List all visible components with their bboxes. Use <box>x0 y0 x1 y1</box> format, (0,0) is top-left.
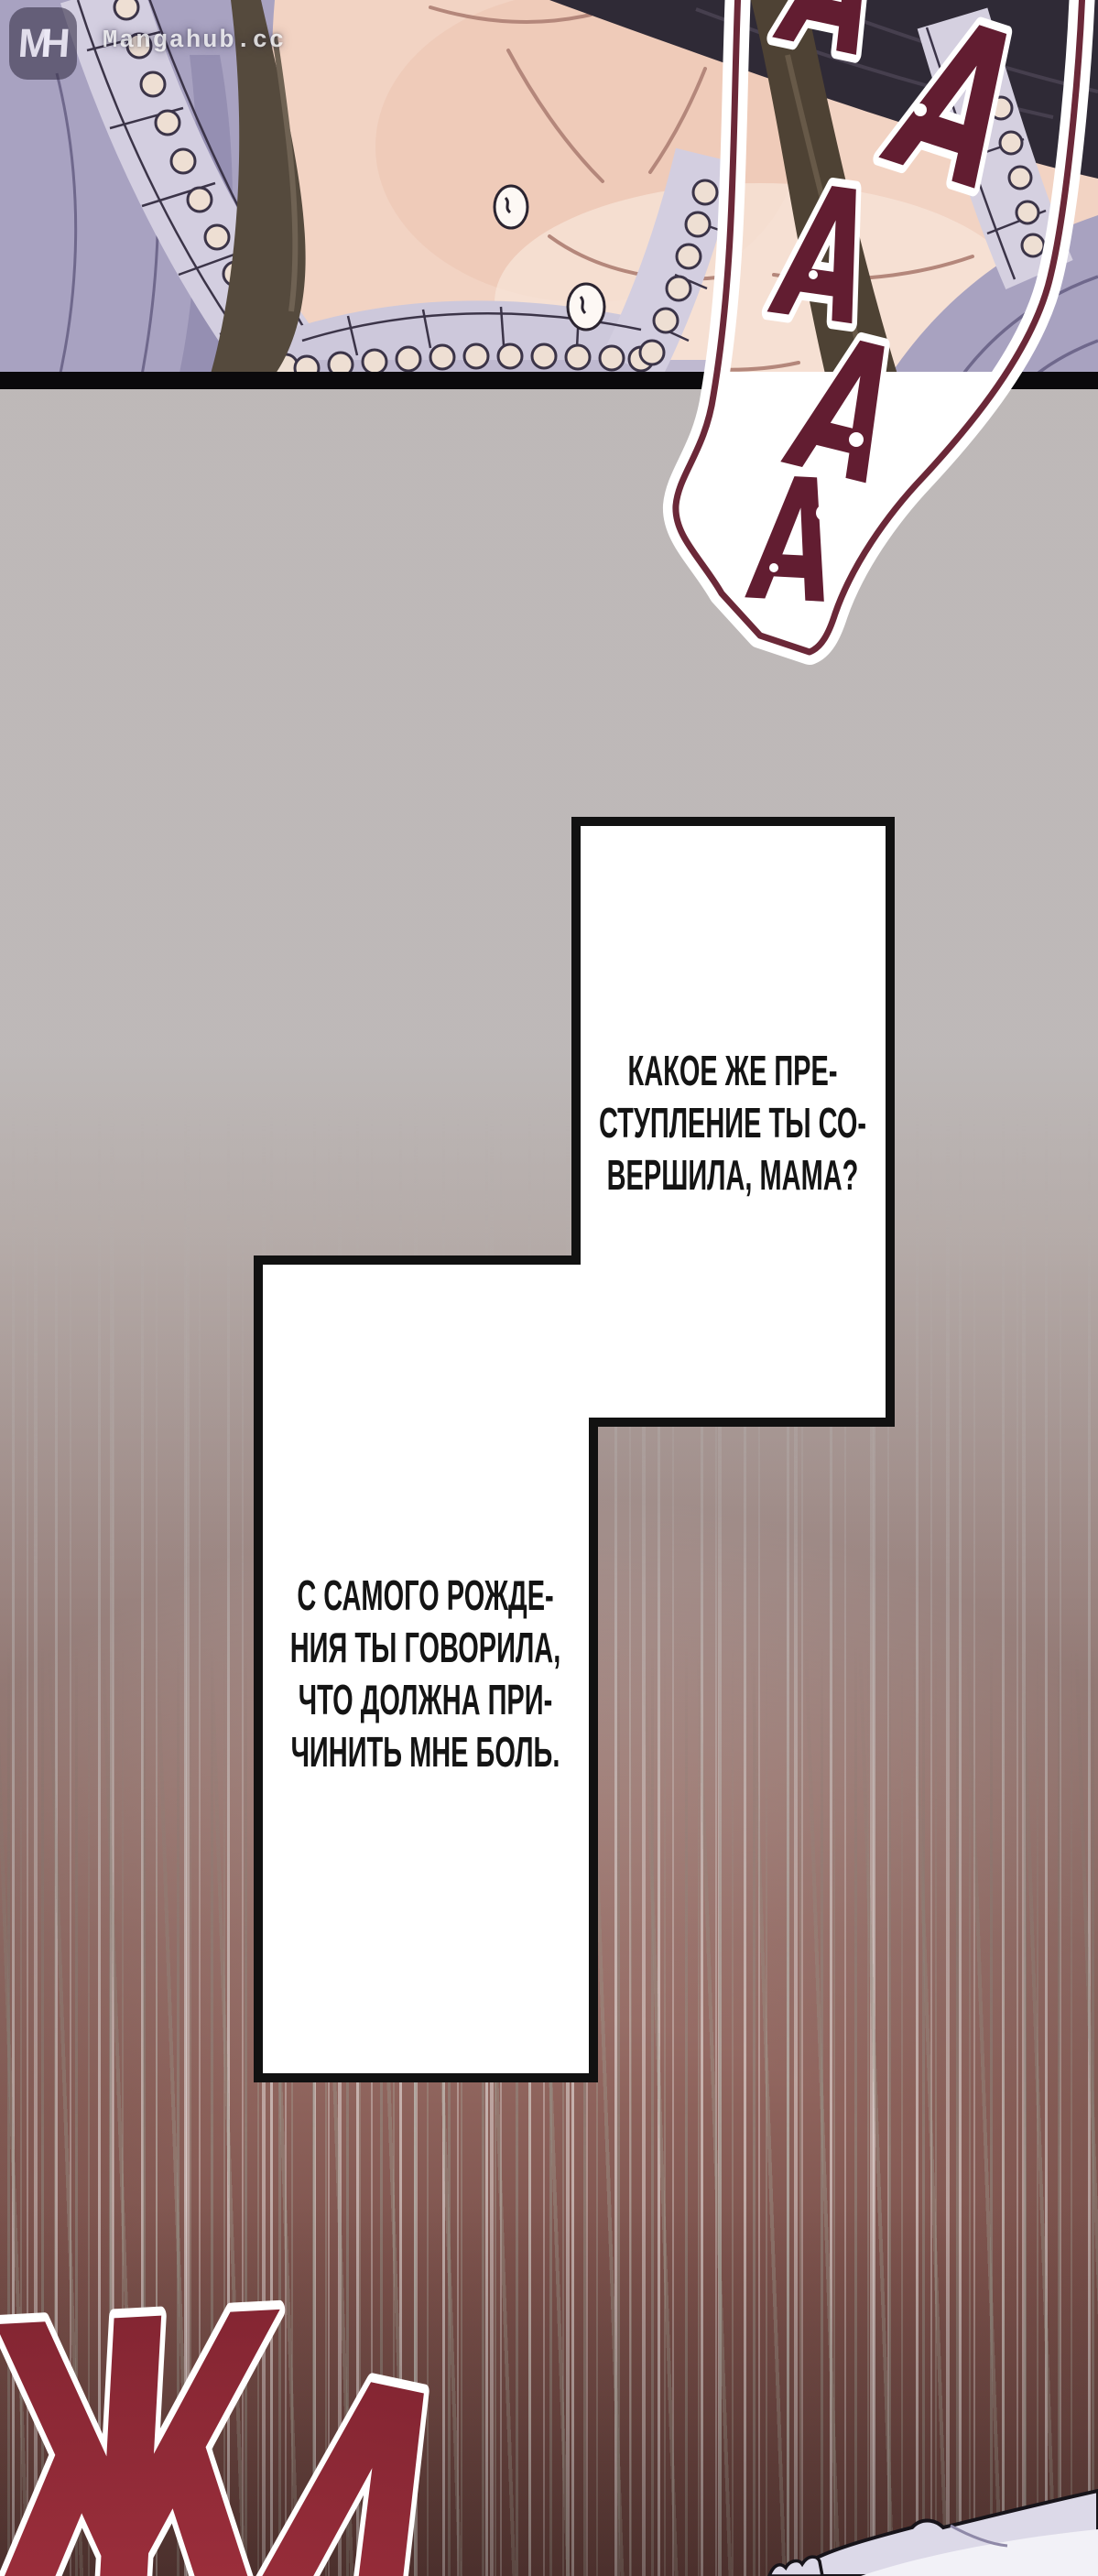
next-panel-blanket <box>769 2491 1098 2576</box>
blanket-scallop-edge <box>769 2557 822 2576</box>
dialogue-boxes-outline <box>258 821 890 2078</box>
scream-letter-1: А <box>763 0 900 100</box>
logo-tile[interactable]: МН <box>9 7 77 80</box>
site-name: Mangahub.cc <box>103 27 286 55</box>
scream-bubble: А А А А А <box>676 0 1082 652</box>
manga-page: А А А А А Ж А КАКОЕ ЖЕ ПРЕ- СТУП <box>0 0 1098 2576</box>
mh-monogram: МН <box>16 21 70 67</box>
scream-letters: А А А А А <box>743 0 1047 643</box>
sfx-letters: Ж А <box>0 2219 495 2576</box>
dialogue-text-2: С САМОГО РОЖДЕ- НИЯ ТЫ ГОВОРИЛА, ЧТО ДОЛ… <box>257 1570 593 1778</box>
watermark[interactable]: МН Mangahub.cc <box>9 7 286 80</box>
dialogue-text-1: КАКОЕ ЖЕ ПРЕ- СТУПЛЕНИЕ ТЫ СО- ВЕРШИЛА, … <box>575 1045 890 1201</box>
scream-letter-2: А <box>863 0 1047 241</box>
overlay-layer: А А А А А Ж А <box>0 0 1098 2576</box>
